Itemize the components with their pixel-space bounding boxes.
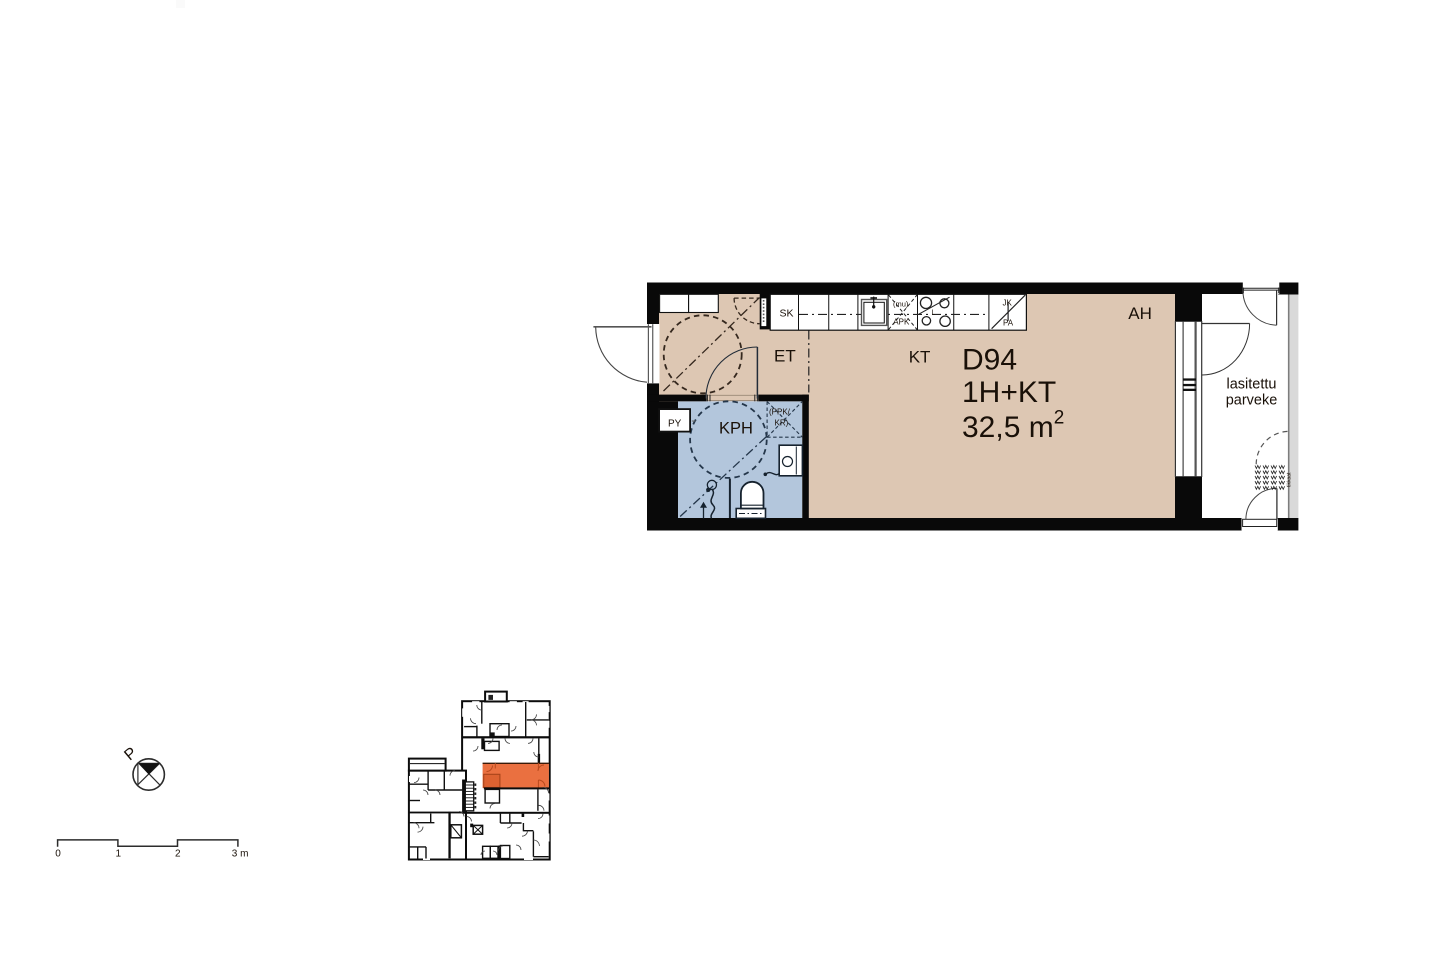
svg-text:SK: SK [780,308,794,320]
svg-text:D94: D94 [962,344,1017,377]
svg-text:ET: ET [774,347,796,366]
svg-text:JK: JK [1003,298,1013,307]
svg-text:(PPK/: (PPK/ [769,408,791,417]
svg-text:PA: PA [1003,319,1014,328]
svg-text:KR): KR) [775,419,789,428]
svg-text:parveke: parveke [1226,393,1278,409]
svg-text:tikkaat: tikkaat [1287,472,1293,487]
svg-text:1H+KT: 1H+KT [962,376,1056,409]
svg-text:3 m: 3 m [232,849,249,860]
svg-text:KPH: KPH [719,419,753,437]
svg-text:PY: PY [668,419,682,430]
svg-text:32,5 m2: 32,5 m2 [962,407,1064,444]
svg-text:lasitettu: lasitettu [1227,377,1277,393]
svg-text:0: 0 [55,849,61,860]
svg-text:KT: KT [909,348,931,367]
svg-text:L: L [932,310,936,317]
svg-text:APK: APK [893,318,910,327]
svg-text:(mu): (mu) [893,300,909,309]
svg-text:AH: AH [1128,304,1152,323]
svg-text:1: 1 [116,849,122,860]
svg-text:2: 2 [175,849,181,860]
